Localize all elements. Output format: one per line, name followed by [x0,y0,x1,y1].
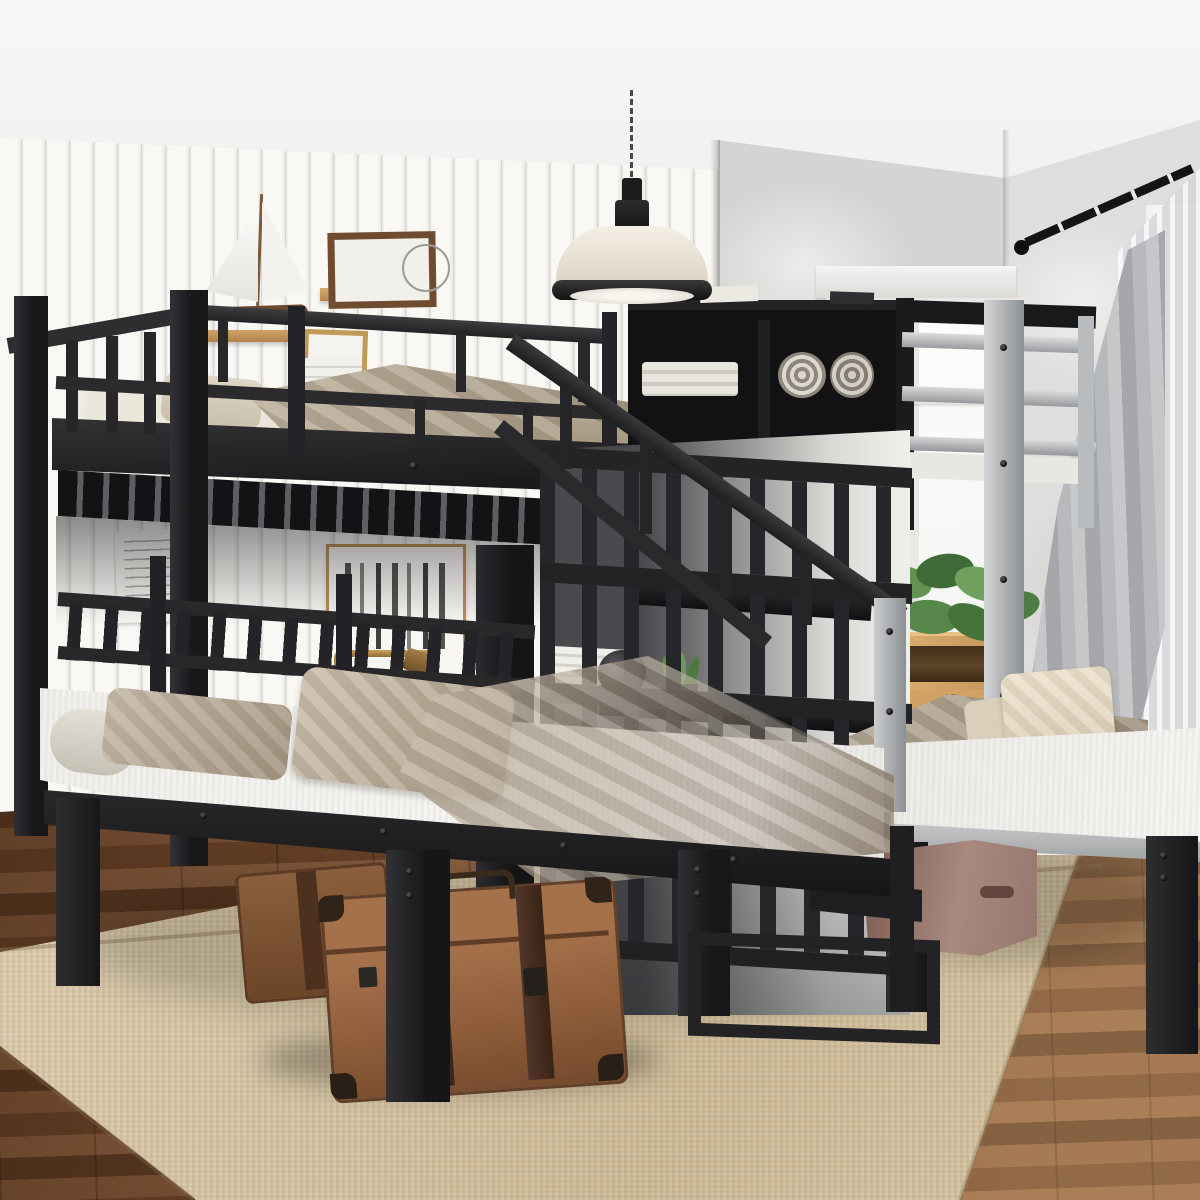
leg-bolt [694,866,701,873]
frame-bolt [560,842,567,849]
guardrail-baluster [415,400,425,448]
suitcase-corner [330,1072,358,1100]
stair-newel-post [890,826,914,1012]
suitcase-body [319,878,629,1104]
suitcase-latch [358,967,377,988]
curtain-rod-finial [1014,240,1029,255]
post-bolt [886,708,893,715]
leg-bolt [694,890,701,897]
fascia-bolt [410,462,417,469]
frame-bolt [380,828,387,835]
folded-blanket-stack [642,362,738,396]
post-bolt [1000,576,1007,583]
left-bed-leg-head [56,798,100,986]
wire-ring-decor [402,244,450,292]
sailboat-sail-right [262,202,308,304]
handrail-baluster [640,440,652,534]
sailboat-sail-left [206,208,258,302]
bedroom-photo: Black metal triple bunk bed (full over t… [0,0,1200,1200]
leg-bolt [406,892,413,899]
suitcase-corner [585,876,613,904]
guardrail-baluster [456,330,466,392]
guardrail-baluster [218,316,228,382]
post-bolt [1000,460,1007,467]
lamp-chain [630,90,633,186]
frame-bolt [730,856,737,863]
stair-top-post [602,312,617,460]
frame-bolt [200,812,207,819]
suitcase-large [319,878,622,1098]
lamp-shade [556,226,708,288]
leg-bolt [1160,852,1167,859]
leg-bolt [1160,874,1167,881]
rolled-blanket [778,352,826,398]
suitcase-handle [440,869,516,904]
dark-item-on-top [830,291,874,305]
rolled-blanket [830,352,874,398]
leg-bolt [406,868,413,875]
handrail-baluster [720,497,732,597]
bunk-post-silver-2 [1078,316,1094,528]
post-bolt [1000,344,1007,351]
left-bed-leg-mid [386,850,450,1102]
box-handle-slot [980,886,1014,898]
post-bolt [886,628,893,635]
lamp-glass [570,288,694,304]
bookcase-divider [758,320,770,444]
suitcase-corner [597,1054,625,1082]
headboard-post [150,556,166,706]
guardrail-post-mid [288,306,305,456]
handrail-baluster [560,385,572,469]
suitcase-buckle [523,967,547,996]
pendant-lamp [540,80,730,320]
right-bed-leg-far [1146,836,1198,1054]
handrail-baluster [800,553,812,625]
